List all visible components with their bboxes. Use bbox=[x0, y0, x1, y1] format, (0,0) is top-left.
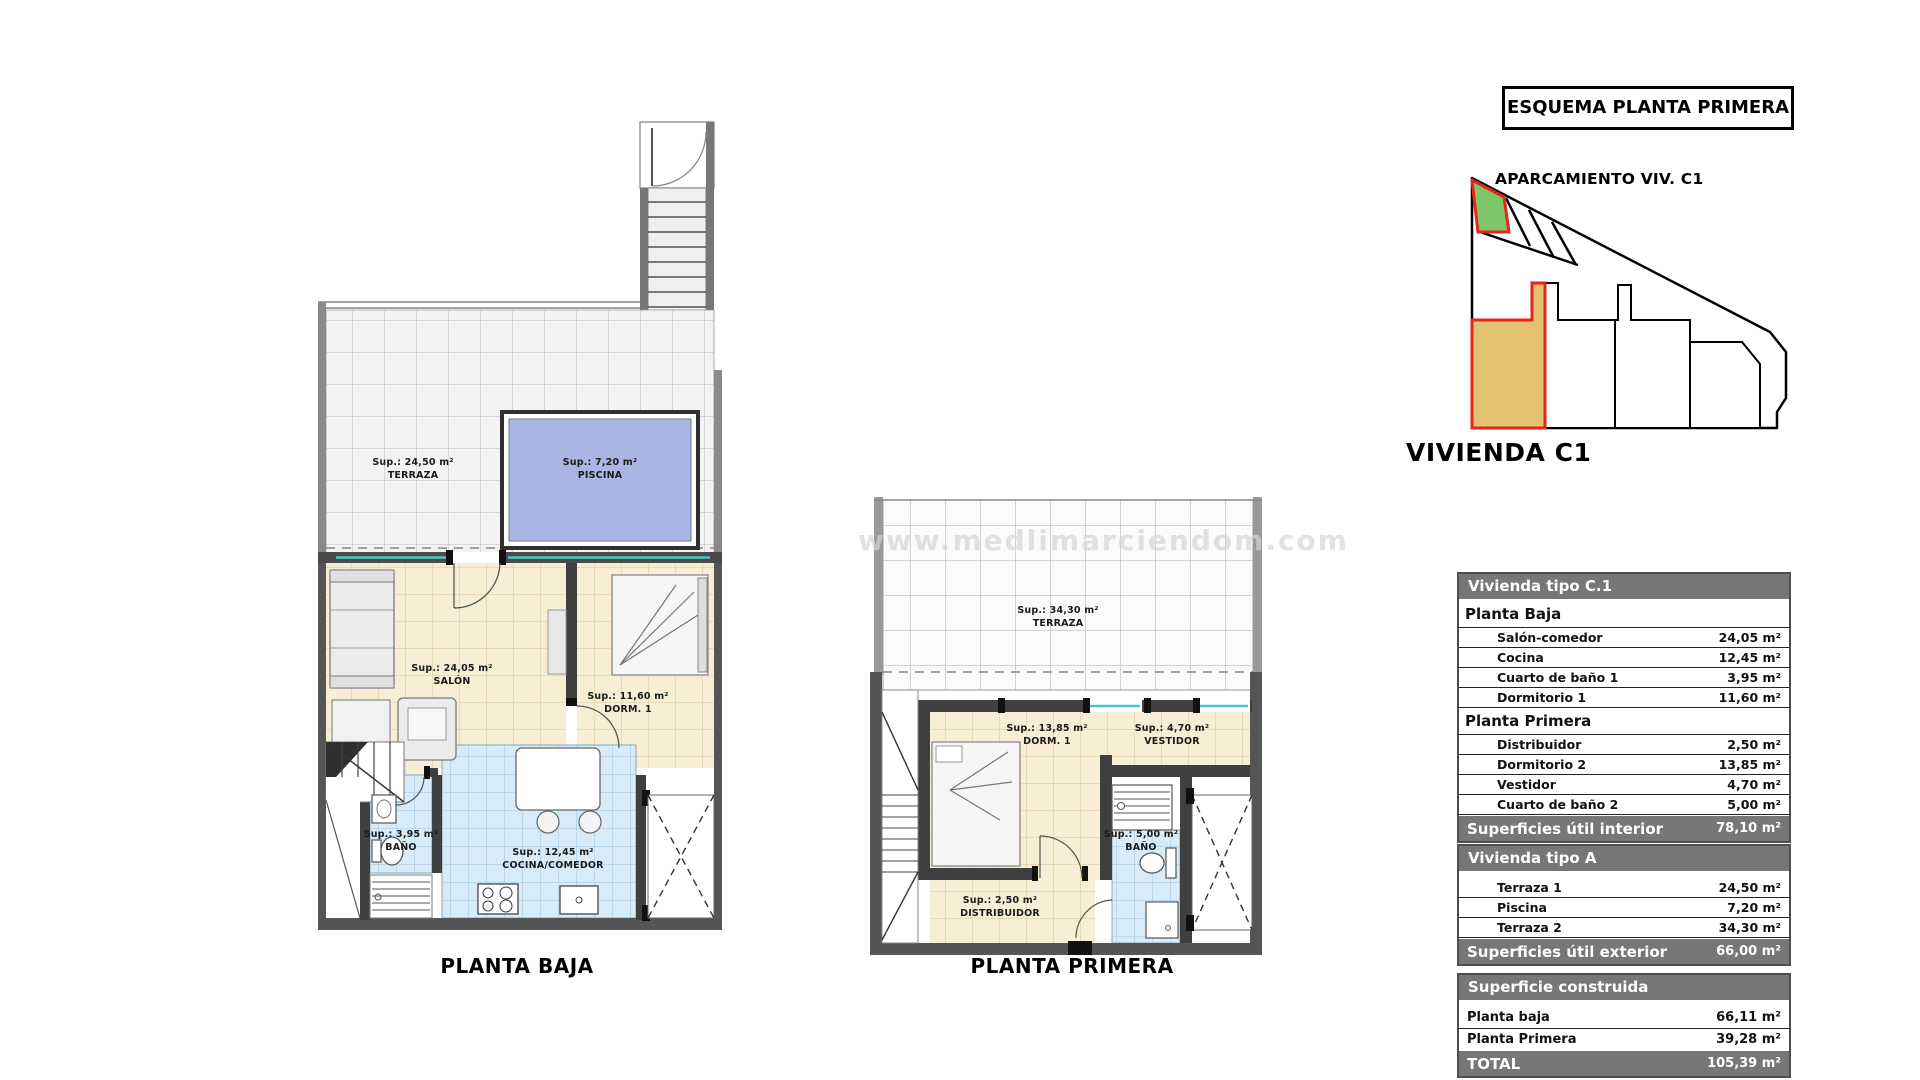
label-cocina: Sup.: 12,45 m² COCINA/COMEDOR bbox=[478, 846, 628, 872]
closet-strip bbox=[1112, 785, 1172, 830]
table-title: Superficie construida bbox=[1459, 975, 1789, 1002]
kitchen-sink-icon bbox=[560, 886, 598, 914]
table-row: Salón-comedor 24,05 m² bbox=[1459, 628, 1789, 648]
section-heading: Planta Primera bbox=[1459, 708, 1789, 735]
label-terraza-primera: Sup.: 34,30 m² TERRAZA bbox=[983, 604, 1133, 630]
bed-icon-primera bbox=[932, 742, 1020, 866]
interior-stair-primera bbox=[882, 690, 918, 943]
esquema-drawing bbox=[1452, 165, 1797, 435]
table-row: Planta baja 66,11 m² bbox=[1459, 1007, 1789, 1029]
table-row: Dormitorio 2 13,85 m² bbox=[1459, 755, 1789, 775]
porch-steps bbox=[370, 875, 432, 918]
table-footer: Superficies útil interior 78,10 m² bbox=[1459, 815, 1789, 841]
label-terraza-baja: Sup.: 24,50 m² TERRAZA bbox=[338, 456, 488, 482]
table-row: Planta Primera 39,28 m² bbox=[1459, 1029, 1789, 1050]
garage-hatch-primera bbox=[1186, 788, 1252, 931]
unit-4 bbox=[1690, 342, 1760, 428]
sink-icon bbox=[372, 795, 396, 823]
table-row: Piscina 7,20 m² bbox=[1459, 898, 1789, 918]
label-bano-baja: Sup.: 3,95 m² BAÑO bbox=[326, 828, 476, 854]
table-row: Cuarto de baño 2 5,00 m² bbox=[1459, 795, 1789, 815]
table-footer: Superficies útil exterior 66,00 m² bbox=[1459, 938, 1789, 964]
label-vestidor: Sup.: 4,70 m² VESTIDOR bbox=[1097, 722, 1247, 748]
shower-tray-icon bbox=[1146, 902, 1178, 938]
label-piscina: Sup.: 7,20 m² PISCINA bbox=[525, 456, 675, 482]
table-superficie-construida: Superficie construida Planta baja 66,11 … bbox=[1457, 973, 1791, 1078]
table-title: Vivienda tipo A bbox=[1459, 846, 1789, 873]
label-distribuidor: Sup.: 2,50 m² DISTRIBUIDOR bbox=[925, 894, 1075, 920]
watermark: www.medlimarciendom.com bbox=[858, 524, 1349, 557]
table-row: Distribuidor 2,50 m² bbox=[1459, 735, 1789, 755]
esquema-title: ESQUEMA PLANTA PRIMERA bbox=[1502, 86, 1794, 130]
caption-planta-baja: PLANTA BAJA bbox=[387, 954, 647, 978]
label-salon: Sup.: 24,05 m² SALÓN bbox=[377, 662, 527, 688]
label-dorm1-baja: Sup.: 11,60 m² DORM. 1 bbox=[553, 690, 703, 716]
table-superficies-exterior: Vivienda tipo A Terraza 1 24,50 m² Pisci… bbox=[1457, 844, 1791, 966]
table-row: Terraza 2 34,30 m² bbox=[1459, 918, 1789, 938]
vivienda-label: VIVIENDA C1 bbox=[1406, 438, 1706, 467]
bed-icon bbox=[612, 575, 708, 675]
section-heading: Planta Baja bbox=[1459, 601, 1789, 628]
table-row: Vestidor 4,70 m² bbox=[1459, 775, 1789, 795]
table-superficies-interior: Vivienda tipo C.1 Planta Baja Salón-come… bbox=[1457, 572, 1791, 843]
table-row: Terraza 1 24,50 m² bbox=[1459, 878, 1789, 898]
table-row: Cuarto de baño 1 3,95 m² bbox=[1459, 668, 1789, 688]
stove-icon bbox=[478, 884, 518, 914]
table-footer: TOTAL 105,39 m² bbox=[1459, 1050, 1789, 1076]
garage-hatch-baja bbox=[648, 795, 714, 918]
table-title: Vivienda tipo C.1 bbox=[1459, 574, 1789, 601]
caption-planta-primera: PLANTA PRIMERA bbox=[942, 954, 1202, 978]
table-row: Dormitorio 1 11,60 m² bbox=[1459, 688, 1789, 708]
table-row: Cocina 12,45 m² bbox=[1459, 648, 1789, 668]
label-bano-primera: Sup.: 5,00 m² BAÑO bbox=[1066, 828, 1216, 854]
floorplan-sheet: Sup.: 24,50 m² TERRAZA Sup.: 7,20 m² PIS… bbox=[0, 0, 1920, 1080]
